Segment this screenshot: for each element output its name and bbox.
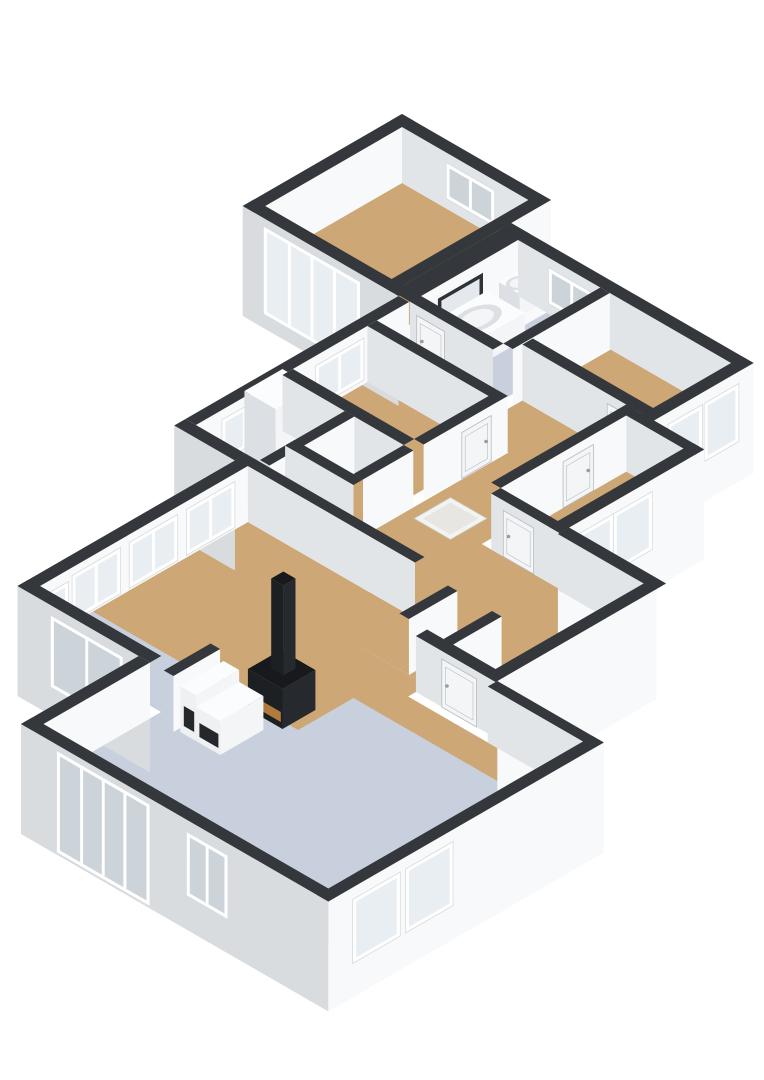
door-handle bbox=[507, 535, 511, 539]
door-handle bbox=[484, 440, 488, 444]
stove-chimney bbox=[271, 572, 295, 676]
box-face-se bbox=[283, 579, 295, 676]
door-handle bbox=[586, 469, 590, 473]
window-mullion bbox=[338, 355, 341, 391]
window-mullion bbox=[209, 499, 212, 539]
window-mullion bbox=[102, 781, 105, 877]
door-handle bbox=[420, 340, 424, 344]
window-mullion bbox=[95, 565, 98, 605]
window-mullion bbox=[123, 793, 126, 889]
floorplan-canvas bbox=[0, 0, 764, 1080]
window-mullion bbox=[469, 180, 472, 210]
window-mullion bbox=[288, 244, 291, 326]
window-mullion bbox=[80, 768, 83, 864]
box-face-sw bbox=[271, 579, 283, 676]
window-mullion bbox=[311, 257, 314, 339]
window-mullion bbox=[152, 532, 155, 572]
door-handle bbox=[445, 684, 449, 688]
floorplan-viewport bbox=[0, 0, 764, 1080]
window-mullion bbox=[206, 847, 209, 905]
